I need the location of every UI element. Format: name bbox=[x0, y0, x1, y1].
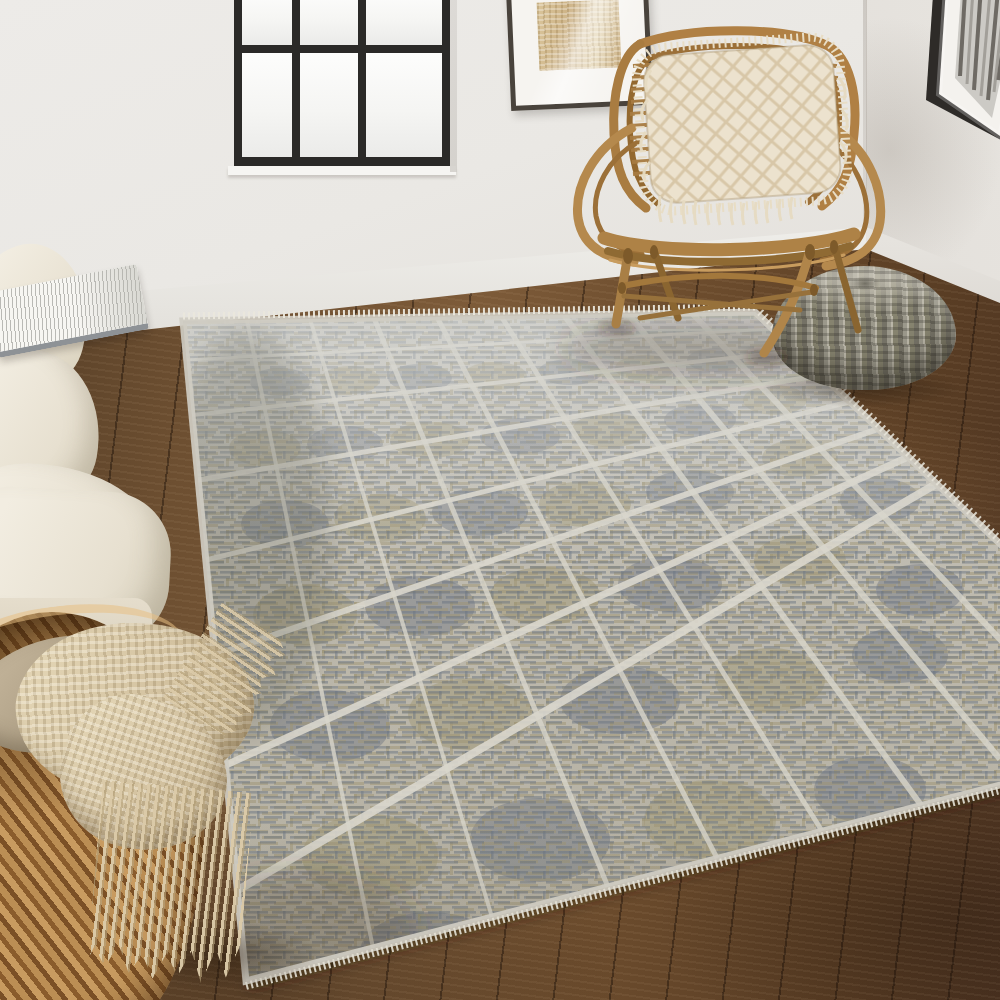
pillow-lattice bbox=[642, 44, 842, 205]
living-room-photo bbox=[0, 0, 1000, 1000]
throw-fringe bbox=[86, 780, 254, 987]
chair-seat bbox=[604, 234, 854, 270]
boho-pillow bbox=[635, 35, 850, 213]
